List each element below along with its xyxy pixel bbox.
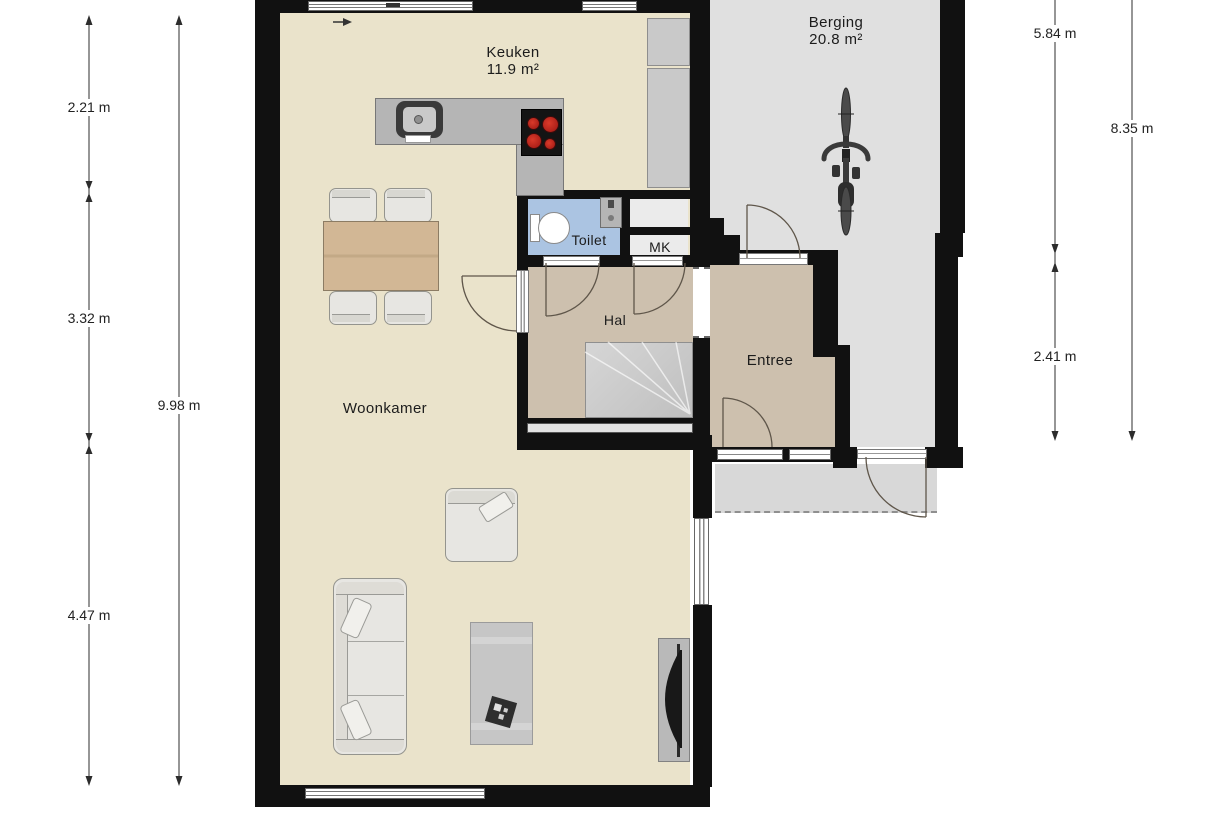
kitchen-cabinet xyxy=(647,68,690,188)
room-label-berging: Berging 20.8 m² xyxy=(776,14,896,48)
sink-faucet xyxy=(405,135,431,143)
dining-chair xyxy=(384,291,430,323)
room-label-hal: Hal xyxy=(575,312,655,329)
room-label-keuken: Keuken 11.9 m² xyxy=(443,44,583,78)
dimension-label: 9.98 m xyxy=(139,397,219,414)
stove-burner xyxy=(527,117,540,130)
dining-chair xyxy=(329,188,375,221)
porch xyxy=(715,464,937,513)
faucet-icon xyxy=(608,200,614,208)
stove-burner xyxy=(544,138,556,150)
wall xyxy=(710,218,724,258)
sofa-armrest xyxy=(336,739,404,752)
room-label-woonkamer: Woonkamer xyxy=(315,400,455,417)
stove-burner xyxy=(542,116,559,133)
stove-burner xyxy=(526,133,542,149)
under-stairs-cupboard xyxy=(527,423,693,433)
floor-plan: Keuken 11.9 m² Berging 20.8 m² Toilet MK… xyxy=(0,0,1220,813)
sofa-back xyxy=(336,582,348,751)
window xyxy=(694,518,709,605)
dining-chair xyxy=(384,188,430,221)
armchair xyxy=(445,488,518,562)
room-entree-floor xyxy=(710,263,813,357)
room-area: 11.9 m² xyxy=(443,61,583,78)
entree-berging-door-sill xyxy=(739,253,808,265)
room-name: Keuken xyxy=(443,44,583,61)
wall xyxy=(835,357,850,447)
window xyxy=(305,788,485,799)
chair-backrest xyxy=(332,314,370,322)
chair-backrest xyxy=(387,190,425,198)
mk-door-sill xyxy=(632,256,683,266)
dimension-label: 8.35 m xyxy=(1092,120,1172,137)
sofa xyxy=(333,578,407,755)
dimension-label: 4.47 m xyxy=(49,607,129,624)
berging-door-sill xyxy=(857,449,927,459)
wall xyxy=(693,338,710,435)
stairs xyxy=(585,342,693,418)
wall xyxy=(693,605,712,787)
front-door-sidelight xyxy=(717,449,783,460)
dimension-label: 2.41 m xyxy=(1015,348,1095,365)
window xyxy=(582,1,637,11)
hal-woonkamer-door-opening xyxy=(516,270,529,333)
wall xyxy=(628,227,690,235)
room-label-toilet: Toilet xyxy=(549,232,629,249)
chair-backrest xyxy=(387,314,425,322)
room-label-mk: MK xyxy=(630,239,690,256)
kitchen-cabinet xyxy=(647,18,690,66)
room-label-entree: Entree xyxy=(710,352,830,369)
mk-niche xyxy=(630,199,688,227)
room-name: Berging xyxy=(776,14,896,31)
wall xyxy=(833,447,857,468)
dining-table xyxy=(323,221,439,291)
window xyxy=(789,449,831,460)
wall xyxy=(724,235,740,258)
room-area: 20.8 m² xyxy=(776,31,896,48)
dimension-label: 2.21 m xyxy=(49,99,129,116)
wall xyxy=(940,0,965,233)
stove xyxy=(521,109,562,156)
wall xyxy=(813,258,838,357)
wall xyxy=(935,233,963,257)
hal-entree-opening xyxy=(693,267,710,338)
chair-backrest xyxy=(332,190,370,198)
toilet-door-sill xyxy=(543,256,600,266)
rug xyxy=(470,622,533,745)
room-berging-floor xyxy=(838,258,940,447)
dimension-label: 5.84 m xyxy=(1015,25,1095,42)
toilet-sink xyxy=(600,197,622,228)
sliding-window-handle xyxy=(386,3,400,7)
wall xyxy=(935,257,958,447)
wall xyxy=(690,0,710,267)
tv-cabinet xyxy=(658,638,690,762)
wall xyxy=(255,13,280,807)
drain-icon xyxy=(608,215,614,221)
dining-chair xyxy=(329,291,375,323)
wall xyxy=(517,190,528,265)
sink-drain xyxy=(414,115,423,124)
dimension-label: 3.32 m xyxy=(49,310,129,327)
wall xyxy=(925,447,963,468)
sofa-armrest xyxy=(336,582,404,595)
